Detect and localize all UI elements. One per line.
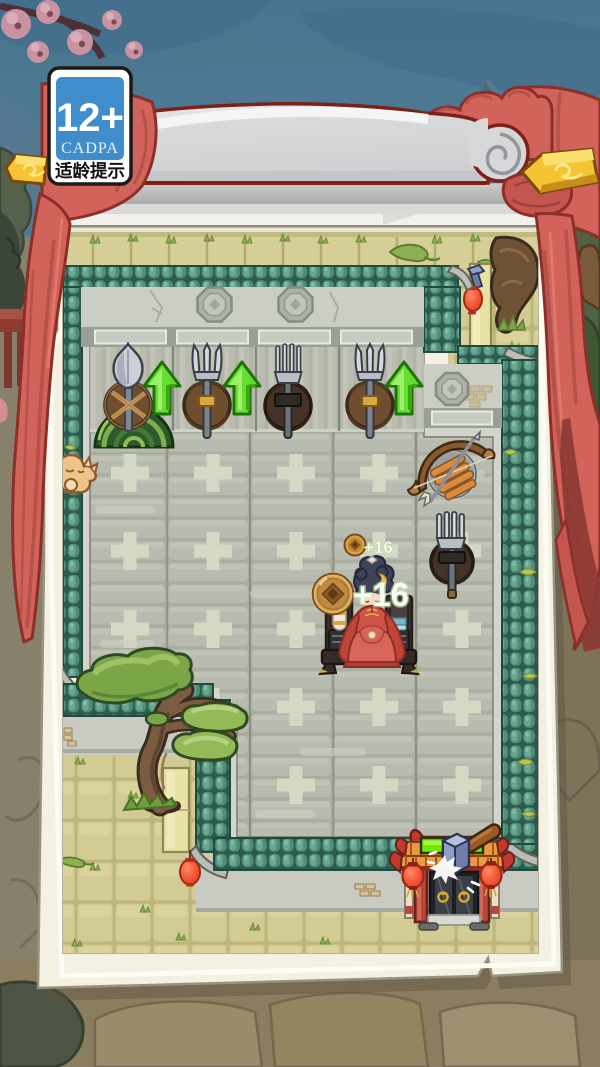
svg-text:+16: +16 bbox=[364, 538, 393, 557]
svg-text:12+: 12+ bbox=[56, 96, 124, 140]
svg-text:CADPA: CADPA bbox=[61, 140, 119, 157]
svg-text:适龄提示: 适龄提示 bbox=[55, 161, 125, 181]
svg-text:+16: +16 bbox=[353, 576, 409, 613]
